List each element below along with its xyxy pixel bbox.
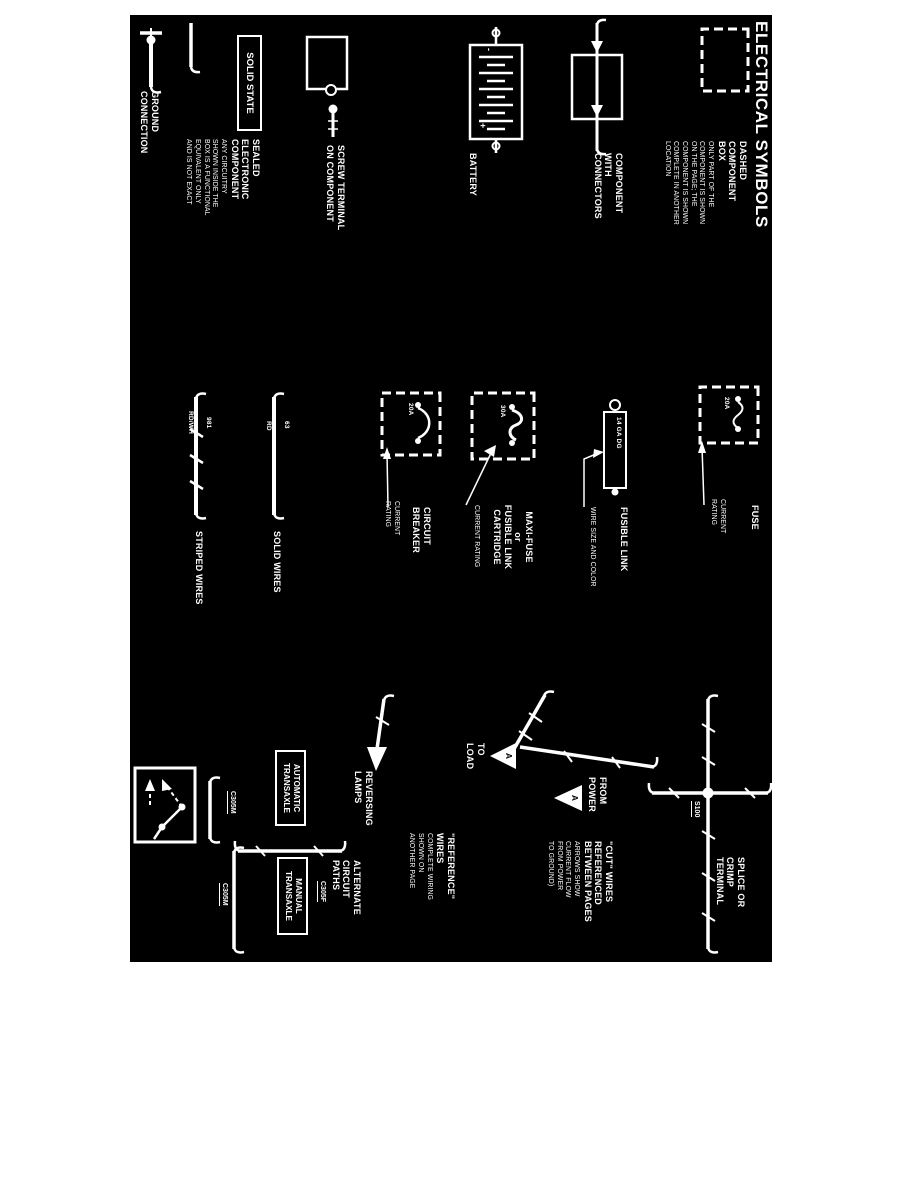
cut-wires-desc: ARROWS SHOW CURRENT FLOW FROM POWER TO G… bbox=[545, 841, 580, 922]
component-connectors-label: COMPONENT WITH CONNECTORS bbox=[592, 153, 624, 219]
battery-label: BATTERY bbox=[467, 153, 478, 196]
dashed-component-box-text: DASHED COMPONENT BOX ONLY PART OF THE CO… bbox=[662, 141, 748, 225]
reference-wires-label: "REFERENCE" WIRES bbox=[435, 833, 456, 900]
striped-wire-symbol bbox=[176, 389, 216, 523]
wire-stub-symbol bbox=[184, 23, 200, 73]
manual-transaxle-box: MANUAL TRANSAXLE bbox=[278, 857, 309, 935]
automatic-transaxle-box: AUTOMATIC TRANSAXLE bbox=[276, 750, 307, 826]
connector-c305m-1: C305M bbox=[227, 791, 236, 814]
maxi-fuse-note: CURRENT RATING bbox=[471, 505, 480, 567]
dashed-component-box-symbol bbox=[698, 25, 752, 95]
solid-wire-color-code: RD bbox=[265, 421, 272, 431]
solid-wire-symbol bbox=[254, 389, 294, 523]
component-connectors-symbol bbox=[562, 21, 632, 153]
striped-wires-label: STRIPED WIRES bbox=[193, 531, 204, 605]
connector-c305m-2: C305M bbox=[219, 883, 228, 906]
dashed-component-box-desc: ONLY PART OF THE COMPONENT IS SHOWN ON T… bbox=[662, 141, 714, 225]
sealed-electronic-label: SEALED ELECTRONIC COMPONENT bbox=[229, 139, 261, 216]
to-load-label: TO LOAD bbox=[465, 743, 486, 769]
splice-symbol bbox=[644, 691, 772, 961]
sealed-electronic-desc: ANY CIRCUITRY SHOWN INSIDE THE BOX IS A … bbox=[184, 139, 227, 216]
reference-wires-text: "REFERENCE" WIRES COMPLETE WIRING SHOWN … bbox=[407, 833, 456, 900]
to-load-circuit-letter: A bbox=[504, 750, 514, 762]
reference-wires-desc: COMPLETE WIRING SHOWN ON ANOTHER PAGE bbox=[407, 833, 433, 900]
transaxle-wire-1 bbox=[198, 775, 222, 847]
from-power-circuit-letter: A bbox=[570, 792, 580, 804]
ground-connection-symbol bbox=[134, 27, 168, 97]
connector-c305f: C305F bbox=[317, 881, 326, 902]
switch-component-symbol bbox=[132, 765, 198, 845]
battery-plus-sign: + bbox=[478, 123, 488, 128]
cut-wires-label: "CUT" WIRES REFERENCED BETWEEN PAGES bbox=[582, 841, 614, 922]
alternate-paths-label: ALTERNATE CIRCUIT PATHS bbox=[330, 860, 362, 915]
screw-terminal-symbol bbox=[301, 35, 357, 145]
reversing-lamps-label: REVERSING LAMPS bbox=[353, 771, 374, 826]
page-title: ELECTRICAL SYMBOLS bbox=[751, 21, 771, 228]
fusible-link-note: WIRE SIZE AND COLOR bbox=[587, 507, 596, 587]
cut-wires-text: "CUT" WIRES REFERENCED BETWEEN PAGES ARR… bbox=[545, 841, 614, 922]
striped-wire-color-code: RD/WH bbox=[187, 411, 194, 434]
striped-wire-circuit-number: 981 bbox=[205, 417, 212, 428]
splice-id: S100 bbox=[691, 801, 700, 817]
to-load-symbol bbox=[486, 687, 554, 787]
maxi-fuse-label: MAXI-FUSE or FUSIBLE LINK CARTRIDGE bbox=[492, 501, 534, 573]
dashed-component-box-label: DASHED COMPONENT BOX bbox=[716, 141, 748, 225]
fuse-note: CURRENT RATING bbox=[709, 499, 726, 533]
splice-label: SPLICE OR CRIMP TERMINAL bbox=[714, 857, 746, 907]
circuit-breaker-rating: 20A bbox=[407, 403, 414, 416]
scanned-manual-page: { "colors": { "page_bg": "#ffffff", "she… bbox=[0, 0, 918, 1188]
battery-minus-sign: - bbox=[484, 48, 494, 51]
fuse-label: FUSE bbox=[749, 505, 760, 530]
screw-terminal-label: SCREW TERMINAL ON COMPONENT bbox=[325, 145, 346, 230]
fusible-link-symbol bbox=[576, 395, 634, 515]
fusible-link-value: 14 GA DG bbox=[615, 417, 622, 449]
fusible-link-label: FUSIBLE LINK bbox=[618, 507, 629, 571]
from-power-label: FROM POWER bbox=[587, 777, 608, 812]
solid-wires-label: SOLID WIRES bbox=[271, 531, 282, 593]
diagram-sheet: ELECTRICAL SYMBOLS DASHED COMPONENT BOX … bbox=[130, 15, 772, 962]
maxi-fuse-rating: 30A bbox=[499, 405, 506, 418]
circuit-breaker-note: CURRENT RATING bbox=[383, 501, 400, 535]
legend-canvas: ELECTRICAL SYMBOLS DASHED COMPONENT BOX … bbox=[130, 15, 772, 962]
battery-symbol bbox=[466, 27, 526, 154]
solid-state-box: SOLID STATE bbox=[237, 35, 262, 131]
ground-connection-label: GROUND CONNECTION bbox=[139, 91, 160, 154]
solid-state-text: SEALED ELECTRONIC COMPONENT ANY CIRCUITR… bbox=[184, 139, 261, 216]
fuse-rating: 20A bbox=[723, 397, 730, 410]
reversing-lamps-arrow bbox=[358, 691, 398, 783]
circuit-breaker-label: CIRCUIT BREAKER bbox=[411, 507, 432, 553]
solid-wire-circuit-number: 63 bbox=[283, 421, 290, 429]
